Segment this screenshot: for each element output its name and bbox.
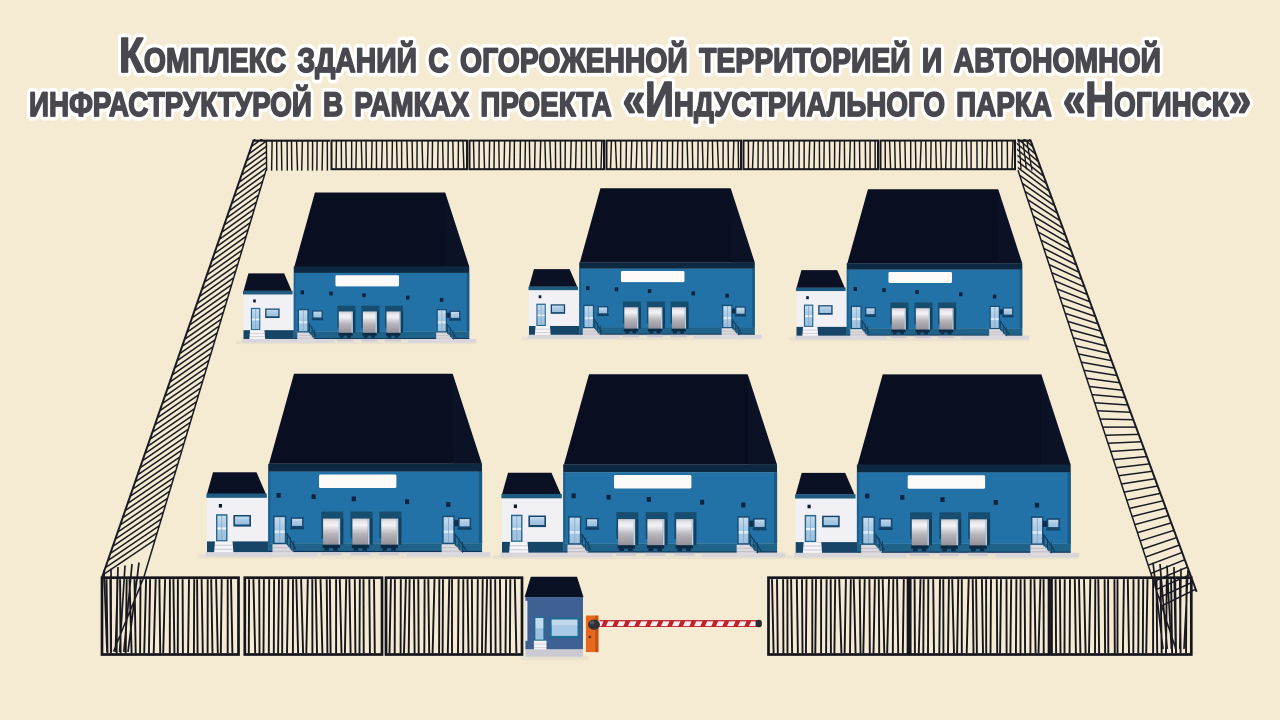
svg-text:инфраструктурой в рамках проек: инфраструктурой в рамках проекта «Индуст… bbox=[29, 73, 1251, 127]
